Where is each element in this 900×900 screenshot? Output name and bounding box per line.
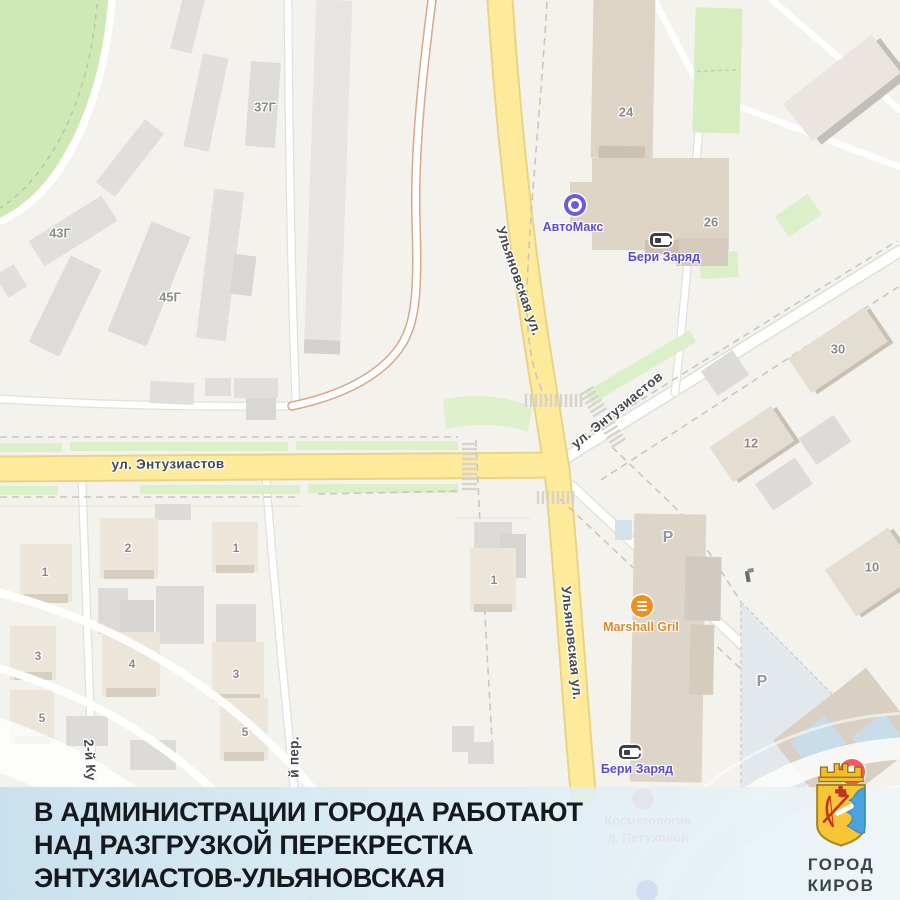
poi-icon-avtomaks[interactable] (564, 194, 586, 216)
street-name-label: ул. Энтузиастов (568, 369, 665, 452)
poi-icon-beri-zaryad-top[interactable] (650, 233, 672, 247)
parking-label: P (663, 529, 674, 547)
house-number-label: 2 (125, 541, 132, 555)
city-logo: ГОРОД КИРОВ (789, 762, 893, 896)
house-number-label: 24 (619, 105, 633, 120)
logo-city-word: ГОРОД (789, 854, 893, 875)
caption-line-2: НАД РАЗГРУЗКОЙ ПЕРЕКРЕСТКА (34, 829, 900, 862)
caption-banner: В АДМИНИСТРАЦИИ ГОРОДА РАБОТАЮТ НАД РАЗГ… (0, 787, 900, 900)
house-number-label: 5 (242, 725, 249, 739)
poi-label-beri-zaryad-bottom[interactable]: Бери Заряд (601, 762, 673, 776)
house-number-label: 37Г (254, 100, 276, 115)
house-number-label: 26 (704, 215, 718, 230)
house-number-label: 45Г (159, 290, 181, 305)
house-number-label: 1 (42, 565, 49, 579)
caption-line-3: ЭНТУЗИАСТОВ-УЛЬЯНОВСКАЯ (34, 862, 900, 895)
street-name-label: 2-й Ку (81, 739, 99, 782)
house-number-label: 1 (233, 541, 240, 555)
logo-kirov-word: КИРОВ (789, 875, 893, 896)
post-image: 37Г43Г45Г2426301210211143355ул. Энтузиас… (0, 0, 900, 900)
house-number-label: 5 (39, 711, 46, 725)
street-name-label: й пер. (287, 736, 302, 778)
poi-label-marshall-gril[interactable]: Marshall Gril (603, 620, 679, 634)
street-name-label: Ульяновская ул. (559, 585, 586, 700)
kirov-coat-of-arms (798, 762, 884, 854)
house-number-label: 3 (233, 667, 240, 681)
poi-icon-beri-zaryad-bottom[interactable] (619, 745, 641, 759)
house-number-label: 10 (865, 560, 879, 575)
poi-icon-marshall-gril[interactable] (631, 595, 653, 617)
caption-line-1: В АДМИНИСТРАЦИИ ГОРОДА РАБОТАЮТ (34, 796, 900, 829)
street-name-label: ул. Энтузиастов (111, 456, 224, 472)
house-number-label: 43Г (49, 226, 71, 241)
house-number-label: 30 (831, 342, 845, 357)
house-number-label: 1 (491, 573, 498, 587)
house-number-label: 3 (35, 649, 42, 663)
poi-label-beri-zaryad-top[interactable]: Бери Заряд (628, 250, 700, 264)
house-number-label: 12 (744, 436, 758, 451)
house-number-label: 4 (129, 657, 136, 671)
poi-label-avtomaks[interactable]: АвтоМакс (543, 220, 604, 234)
parking-label: P (757, 673, 768, 691)
street-name-label: Ульяновская ул. (493, 225, 544, 338)
